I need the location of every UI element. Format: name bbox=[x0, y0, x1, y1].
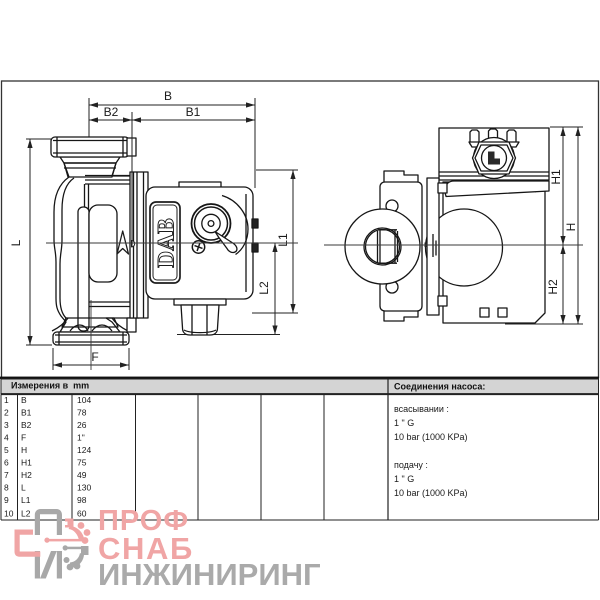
svg-text:9: 9 bbox=[4, 495, 9, 505]
svg-text:H2: H2 bbox=[21, 470, 32, 480]
svg-text:124: 124 bbox=[77, 445, 91, 455]
svg-text:L2: L2 bbox=[21, 509, 31, 519]
svg-text:B2: B2 bbox=[104, 105, 119, 119]
svg-text:10 bar (1000 KPa): 10 bar (1000 KPa) bbox=[394, 488, 468, 498]
svg-text:B1: B1 bbox=[186, 105, 201, 119]
svg-text:B: B bbox=[164, 89, 172, 103]
svg-text:3: 3 bbox=[4, 420, 9, 430]
svg-text:78: 78 bbox=[77, 408, 87, 418]
svg-text:130: 130 bbox=[77, 483, 91, 493]
svg-text:1 " G: 1 " G bbox=[394, 474, 414, 484]
svg-text:6: 6 bbox=[4, 458, 9, 468]
svg-text:H1: H1 bbox=[21, 458, 32, 468]
svg-text:1": 1" bbox=[77, 433, 85, 443]
svg-text:104: 104 bbox=[77, 395, 91, 405]
svg-text:H: H bbox=[564, 223, 578, 232]
svg-text:Соединения насоса:: Соединения насоса: bbox=[394, 382, 485, 392]
svg-text:B2: B2 bbox=[21, 420, 32, 430]
svg-text:ИНЖИНИРИНГ: ИНЖИНИРИНГ bbox=[98, 557, 321, 592]
svg-text:5: 5 bbox=[4, 445, 9, 455]
svg-text:H: H bbox=[21, 445, 27, 455]
svg-text:26: 26 bbox=[77, 420, 87, 430]
svg-text:всасывании :: всасывании : bbox=[394, 404, 449, 414]
svg-text:B: B bbox=[21, 395, 27, 405]
svg-text:10: 10 bbox=[4, 509, 14, 519]
svg-text:L2: L2 bbox=[257, 281, 271, 295]
svg-text:L: L bbox=[9, 239, 23, 246]
svg-text:75: 75 bbox=[77, 458, 87, 468]
svg-text:98: 98 bbox=[77, 495, 87, 505]
svg-text:F: F bbox=[21, 433, 26, 443]
svg-text:7: 7 bbox=[4, 470, 9, 480]
svg-text:H1: H1 bbox=[549, 169, 563, 185]
svg-text:L: L bbox=[21, 483, 26, 493]
svg-text:H2: H2 bbox=[546, 279, 560, 295]
svg-text:B1: B1 bbox=[21, 408, 32, 418]
svg-text:подачу :: подачу : bbox=[394, 460, 428, 470]
svg-text:2: 2 bbox=[4, 408, 9, 418]
svg-text:1 " G: 1 " G bbox=[394, 418, 414, 428]
svg-text:49: 49 bbox=[77, 470, 87, 480]
svg-text:L1: L1 bbox=[21, 495, 31, 505]
svg-text:10 bar (1000 KPa): 10 bar (1000 KPa) bbox=[394, 432, 468, 442]
svg-text:1: 1 bbox=[4, 395, 9, 405]
svg-text:F: F bbox=[91, 350, 98, 364]
svg-text:60: 60 bbox=[77, 509, 87, 519]
svg-text:4: 4 bbox=[4, 433, 9, 443]
svg-text:L1: L1 bbox=[276, 233, 290, 247]
svg-text:Измерения в mm: Измерения в mm bbox=[11, 381, 89, 391]
svg-text:8: 8 bbox=[4, 483, 9, 493]
